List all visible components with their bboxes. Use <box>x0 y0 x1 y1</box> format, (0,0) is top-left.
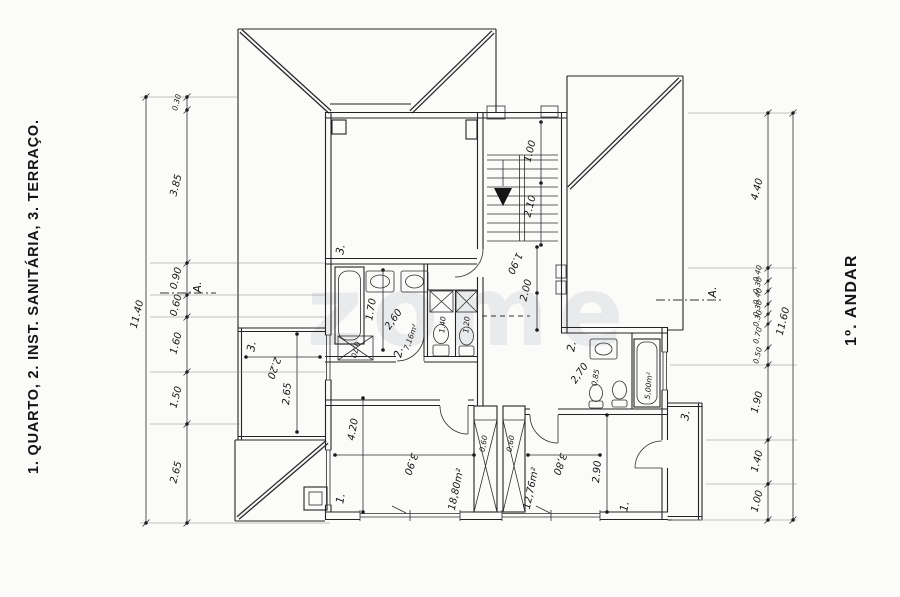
terrace-left-dim-220: 2.20 <box>264 356 282 381</box>
terrace-left-dim-265: 2.65 <box>281 382 294 405</box>
dim-left-385: 3.85 <box>169 173 185 197</box>
dim-right-440: 4.40 <box>750 177 766 201</box>
bedroom-right-number: 1. <box>617 500 632 513</box>
roof-bottom-left <box>235 440 327 521</box>
bidet <box>589 385 603 409</box>
dim-left-060: 0.60 <box>169 293 185 317</box>
wc2-dim: 1.20 <box>461 316 471 334</box>
bath-right-area: 5,00m² <box>643 372 654 400</box>
dim-right-140: 1.40 <box>750 449 766 473</box>
pillar <box>466 120 477 139</box>
corner-post <box>332 120 346 134</box>
dim-chain-right <box>670 110 797 524</box>
duct1-dim: 0,60 <box>478 434 490 452</box>
section-marker-left: A. <box>191 281 204 293</box>
dim-left-160: 1.60 <box>169 331 185 355</box>
bath-right-dim-085: 0,85 <box>590 368 602 386</box>
dim-right-total: 11.60 <box>775 306 793 336</box>
duct-columns <box>474 406 525 512</box>
dim-left-090: 0.90 <box>169 266 185 290</box>
bedroom-left-area: 18,80m² <box>447 468 467 512</box>
stair-dim-210: 2.10 <box>523 194 539 218</box>
bedroom-left-number: 1. <box>333 492 348 505</box>
dim-right-100: 1.00 <box>750 489 766 513</box>
terrace-top-number: 3. <box>333 243 348 256</box>
bath-right-number: 2. <box>564 340 579 353</box>
terrace-left-number: 3. <box>244 340 259 353</box>
stair-top-window-2 <box>541 106 558 117</box>
bedroom-left-dim-420: 4.20 <box>346 418 361 442</box>
dim-right-c6: 0.70 <box>751 326 764 345</box>
bedroom-right-dim-290: 2.90 <box>591 460 604 483</box>
floor-plan-drawing: zome <box>0 0 900 597</box>
dim-left-265: 2.65 <box>169 460 185 484</box>
dim-right-c7: 0.50 <box>751 346 764 365</box>
dim-left-150: 1.50 <box>169 385 185 409</box>
balcony-right-number: 3. <box>678 409 693 422</box>
dim-left-total: 11.40 <box>129 299 147 329</box>
legend-text: 1. QUARTO, 2. INST. SANITÁRIA, 3. TERRAÇ… <box>25 119 42 474</box>
dim-left-030: 0.30 <box>170 93 183 112</box>
stair-direction-arrow <box>494 188 512 206</box>
dim-labels-left: 11.40 0.30 3.85 0.90 0.60 1.60 1.50 2.65 <box>129 93 185 485</box>
chimney <box>304 487 327 510</box>
dim-right-190: 1.90 <box>750 390 766 414</box>
toilet-right <box>612 381 627 407</box>
floor-title: 1º. ANDAR <box>843 254 860 346</box>
duct2-dim: 0,60 <box>505 434 517 452</box>
wc1-dim: 1.40 <box>437 316 447 334</box>
floor-plan-svg: zome <box>0 0 900 597</box>
section-marker-right: A. <box>706 286 719 298</box>
